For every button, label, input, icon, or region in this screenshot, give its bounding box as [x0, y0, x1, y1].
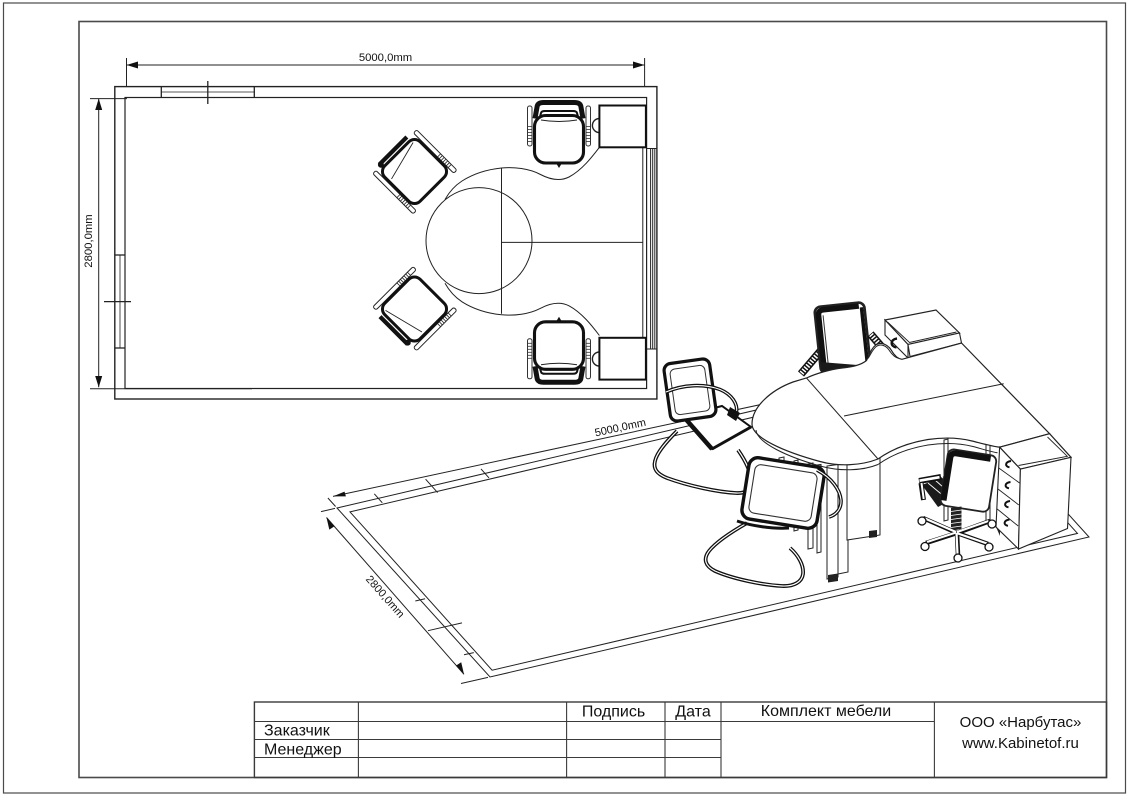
svg-text:Дата: Дата — [675, 704, 711, 721]
svg-text:Подпись: Подпись — [582, 704, 645, 721]
svg-text:Комплект мебели: Комплект мебели — [761, 703, 891, 720]
svg-text:www.Kabinetof.ru: www.Kabinetof.ru — [961, 735, 1079, 752]
svg-text:Менеджер: Менеджер — [264, 742, 342, 759]
svg-text:2800,0mm: 2800,0mm — [83, 214, 95, 267]
svg-text:5000,0mm: 5000,0mm — [359, 52, 412, 64]
svg-text:Заказчик: Заказчик — [264, 723, 331, 740]
svg-text:ООО «Нарбутас»: ООО «Нарбутас» — [960, 714, 1082, 731]
